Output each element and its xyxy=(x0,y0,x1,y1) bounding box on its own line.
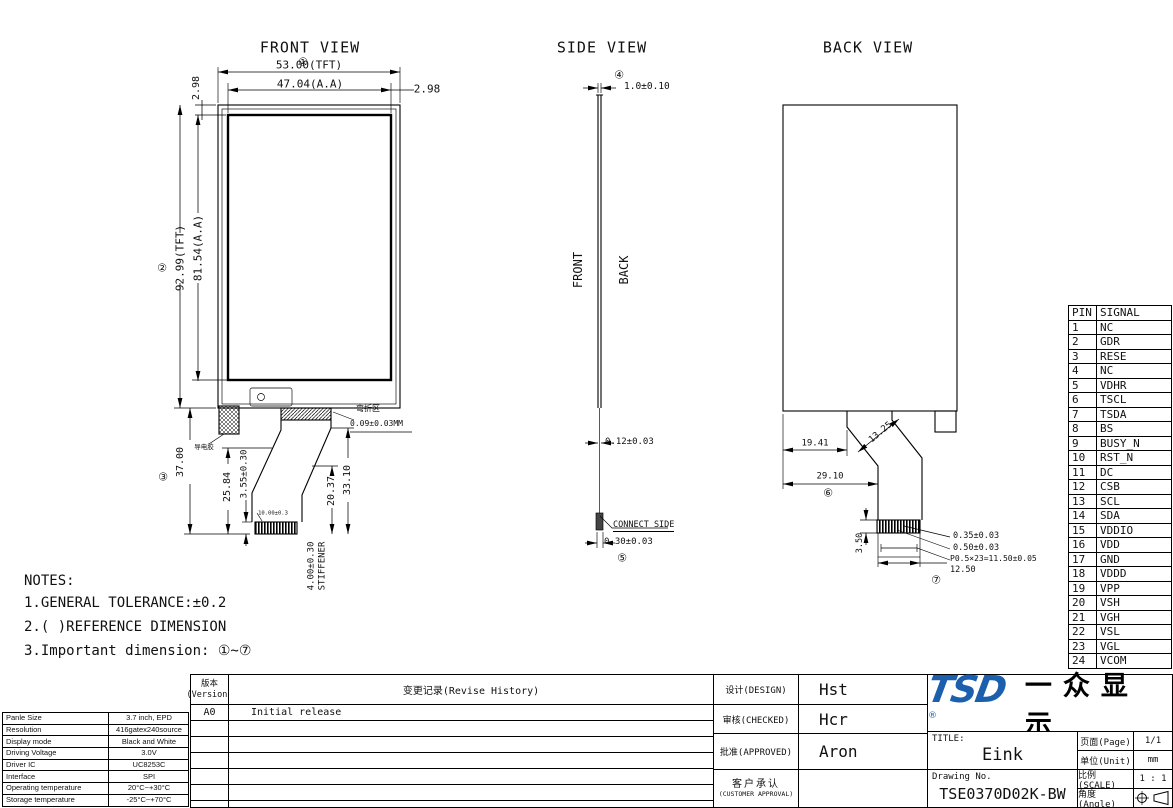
history-header: 变更记录(Revise History) xyxy=(228,674,714,705)
version-header: 版本 (Version) xyxy=(190,674,229,705)
customer-approval-label: 客户承认 (CUSTOMER APPROVAL) xyxy=(713,769,799,808)
table-row: Operating temperature20°C~+30°C xyxy=(3,783,189,795)
checked-value: Hcr xyxy=(798,704,928,734)
table-row: Driver ICUC8253C xyxy=(3,759,189,771)
table-row: Storage temperature-25°C~+70°C xyxy=(3,794,189,806)
title-cell: TITLE: Eink xyxy=(927,731,1078,770)
signal-cell: VSL xyxy=(1097,625,1172,640)
company-logo: TSD® 一众显示 xyxy=(927,674,1173,732)
table-row: 13SCL xyxy=(1069,494,1172,509)
connect-side-label: CONNECT SIDE xyxy=(613,521,674,532)
spec-value: SPI xyxy=(109,771,189,783)
revision-empty-row xyxy=(228,720,714,737)
table-row: 4NC xyxy=(1069,364,1172,379)
pin-cell: 15 xyxy=(1069,523,1097,538)
revision-empty-row xyxy=(190,736,229,753)
customer-label-en: (CUSTOMER APPROVAL) xyxy=(719,791,793,799)
spec-label: Operating temperature xyxy=(3,783,109,795)
dim-1250: 12.50 xyxy=(950,566,976,575)
table-row: Panle Size3.7 inch, EPD xyxy=(3,713,189,725)
signal-cell: NC xyxy=(1097,320,1172,335)
pin-cell: 14 xyxy=(1069,509,1097,524)
tsd-logo-text: TSD xyxy=(924,668,1008,711)
table-row: 9BUSY_N xyxy=(1069,436,1172,451)
foam-label: 导电胶 xyxy=(194,444,214,451)
spec-table: Panle Size3.7 inch, EPD Resolution416gat… xyxy=(2,712,189,807)
dim-pitch: P0.5×23=11.50±0.05 xyxy=(950,555,1037,563)
marker-6: ⑥ xyxy=(823,488,833,499)
signal-cell: CSB xyxy=(1097,480,1172,495)
front-view-dimensions xyxy=(174,67,414,546)
table-row: 19VPP xyxy=(1069,581,1172,596)
table-row: 3RESE xyxy=(1069,349,1172,364)
dim-aa-height: 81.54(A.A) xyxy=(193,215,204,281)
spec-label: Driving Voltage xyxy=(3,748,109,760)
revision-empty-row xyxy=(228,768,714,785)
dim-050: 0.50±0.03 xyxy=(953,544,999,553)
note-3: 3.Important dimension: ①~⑦ xyxy=(24,644,251,658)
notes-title: NOTES: xyxy=(24,574,75,588)
projection-symbol-icon xyxy=(1134,790,1172,806)
table-row: 15VDDIO xyxy=(1069,523,1172,538)
spec-label: Storage temperature xyxy=(3,794,109,806)
signal-cell: VDD xyxy=(1097,538,1172,553)
front-view-title: FRONT VIEW xyxy=(260,41,360,56)
customer-label-cn: 客户承认 xyxy=(732,779,780,791)
table-row: 21VGH xyxy=(1069,610,1172,625)
pin-cell: 16 xyxy=(1069,538,1097,553)
table-row: 17GND xyxy=(1069,552,1172,567)
revision-empty-row xyxy=(228,736,714,753)
drawing-no-value: TSE0370D02K-BW xyxy=(939,785,1065,803)
pin-cell: 11 xyxy=(1069,465,1097,480)
table-row: 10RST_N xyxy=(1069,451,1172,466)
bend-area-dim: 0.09±0.03MM xyxy=(350,420,403,428)
dim-2037: 20.37 xyxy=(327,476,337,506)
table-header-row: PIN SIGNAL xyxy=(1069,306,1172,321)
pin-cell: 19 xyxy=(1069,581,1097,596)
table-row: 11DC xyxy=(1069,465,1172,480)
table-row: 1NC xyxy=(1069,320,1172,335)
spec-value: 20°C~+30°C xyxy=(109,783,189,795)
revision-empty-row xyxy=(190,800,229,808)
pin-cell: 22 xyxy=(1069,625,1097,640)
signal-cell: VSH xyxy=(1097,596,1172,611)
table-row: 23VGL xyxy=(1069,639,1172,654)
table-row: InterfaceSPI xyxy=(3,771,189,783)
spec-value: Black and White xyxy=(109,736,189,748)
marker-2: ② xyxy=(157,263,167,274)
marker-7: ⑦ xyxy=(931,575,941,586)
dim-tft-width: 53.00(TFT) xyxy=(276,60,342,71)
spec-label: Driver IC xyxy=(3,759,109,771)
pin-cell: 5 xyxy=(1069,378,1097,393)
marker-5: ⑤ xyxy=(617,553,627,564)
table-row: 7TSDA xyxy=(1069,407,1172,422)
signal-cell: RST_N xyxy=(1097,451,1172,466)
page-value: 1/1 xyxy=(1133,731,1173,751)
signal-cell: VGL xyxy=(1097,639,1172,654)
spec-value: 3.0V xyxy=(109,748,189,760)
dim-3700: 37.00 xyxy=(176,447,186,477)
approved-value: Aron xyxy=(798,733,928,770)
engineering-drawing-sheet: FRONT VIEW ① 53.00(TFT) 47.04(A.A) 2.98 … xyxy=(0,0,1173,808)
table-row: Resolution416gatex240source xyxy=(3,724,189,736)
title-value: Eink xyxy=(982,745,1023,765)
signal-cell: VDHR xyxy=(1097,378,1172,393)
signal-cell: GDR xyxy=(1097,335,1172,350)
front-view-panel xyxy=(218,105,400,408)
customer-approval-value xyxy=(798,769,928,808)
revision-cell: A0 xyxy=(190,704,229,721)
signal-cell: VPP xyxy=(1097,581,1172,596)
table-row: 18VDDD xyxy=(1069,567,1172,582)
dim-030: 0.30±0.03 xyxy=(604,538,653,547)
table-row: Display modeBlack and White xyxy=(3,736,189,748)
signal-header: SIGNAL xyxy=(1097,306,1172,321)
pin-cell: 21 xyxy=(1069,610,1097,625)
pin-cell: 2 xyxy=(1069,335,1097,350)
table-row: 6TSCL xyxy=(1069,393,1172,408)
drawing-no-label: Drawing No. xyxy=(932,773,992,782)
pin-cell: 17 xyxy=(1069,552,1097,567)
version-label-en: (Version) xyxy=(186,690,232,700)
scale-value: 1 : 1 xyxy=(1133,769,1173,789)
side-view-lines xyxy=(583,83,668,548)
pin-signal-table: PIN SIGNAL 1NC 2GDR 3RESE 4NC 5VDHR 6TSC… xyxy=(1068,305,1172,669)
table-row: 8BS xyxy=(1069,422,1172,437)
tsd-logo: TSD® xyxy=(928,668,1011,739)
revision-empty-row xyxy=(190,768,229,785)
table-row: 20VSH xyxy=(1069,596,1172,611)
approved-label: 批准(APPROVED) xyxy=(713,733,799,770)
pin-cell: 6 xyxy=(1069,393,1097,408)
table-row: 5VDHR xyxy=(1069,378,1172,393)
revision-empty-row xyxy=(190,784,229,801)
design-value: Hst xyxy=(798,674,928,705)
checked-label: 审核(CHECKED) xyxy=(713,704,799,734)
bend-area-label: 弯折区 xyxy=(356,405,380,413)
revision-empty-row xyxy=(190,752,229,769)
pin-cell: 7 xyxy=(1069,407,1097,422)
signal-cell: BS xyxy=(1097,422,1172,437)
spec-label: Interface xyxy=(3,771,109,783)
revision-empty-row xyxy=(228,784,714,801)
dim-aa-width: 47.04(A.A) xyxy=(277,79,343,90)
dim-stiffener-400: 4.00±0.30 xyxy=(308,542,317,591)
signal-cell: DC xyxy=(1097,465,1172,480)
signal-cell: SCL xyxy=(1097,494,1172,509)
unit-value: mm xyxy=(1133,750,1173,770)
table-row: 2GDR xyxy=(1069,335,1172,350)
dim-350: 3.50 xyxy=(856,533,865,553)
pin-cell: 10 xyxy=(1069,451,1097,466)
back-view-panel xyxy=(783,105,957,557)
dim-left-298: 2.98 xyxy=(192,76,202,100)
angle-label: 角度(Angle) xyxy=(1077,788,1134,808)
pin-cell: 12 xyxy=(1069,480,1097,495)
pin-header: PIN xyxy=(1069,306,1097,321)
dim-355: 3.55±0.30 xyxy=(241,450,250,499)
revision-empty-row xyxy=(228,800,714,808)
dim-2910: 29.10 xyxy=(816,473,843,482)
pin-cell: 20 xyxy=(1069,596,1097,611)
pin-cell: 13 xyxy=(1069,494,1097,509)
dim-right-298: 2.98 xyxy=(414,84,441,95)
signal-cell: VDDD xyxy=(1097,567,1172,582)
table-row: 14SDA xyxy=(1069,509,1172,524)
stiffener-label: STIFFENER xyxy=(319,542,328,591)
pin-cell: 3 xyxy=(1069,349,1097,364)
signal-cell: TSCL xyxy=(1097,393,1172,408)
dim-tft-height: 92.99(TFT) xyxy=(175,225,186,291)
signal-cell: TSDA xyxy=(1097,407,1172,422)
registered-mark: ® xyxy=(928,711,937,721)
dim-2584: 25.84 xyxy=(223,472,233,502)
spec-value: 416gatex240source xyxy=(109,724,189,736)
signal-cell: NC xyxy=(1097,364,1172,379)
signal-cell: VGH xyxy=(1097,610,1172,625)
pin-cell: 8 xyxy=(1069,422,1097,437)
pin-cell: 4 xyxy=(1069,364,1097,379)
table-row: 12CSB xyxy=(1069,480,1172,495)
revision-empty-row xyxy=(228,752,714,769)
note-2: 2.( )REFERENCE DIMENSION xyxy=(24,620,226,634)
revision-empty-row xyxy=(190,720,229,737)
side-view-title: SIDE VIEW xyxy=(557,41,647,56)
dim-3310: 33.10 xyxy=(343,465,353,495)
side-front-label: FRONT xyxy=(572,252,584,288)
dim-thickness: 1.0±0.10 xyxy=(624,82,670,92)
pin-cell: 23 xyxy=(1069,639,1097,654)
version-label-cn: 版本 xyxy=(201,679,218,689)
spec-value: UC8253C xyxy=(109,759,189,771)
signal-cell: VDDIO xyxy=(1097,523,1172,538)
spec-label: Resolution xyxy=(3,724,109,736)
gold-finger-note: 10.00±0.3 xyxy=(258,511,288,517)
page-label: 页面(Page) xyxy=(1077,731,1134,751)
design-label: 设计(DESIGN) xyxy=(713,674,799,705)
dim-fpc-thickness: 0.12±0.03 xyxy=(605,438,654,447)
signal-cell: GND xyxy=(1097,552,1172,567)
revision-desc-cell: Initial release xyxy=(228,704,714,721)
spec-value: -25°C~+70°C xyxy=(109,794,189,806)
title-label: TITLE: xyxy=(932,735,965,744)
drawing-no-cell: Drawing No. TSE0370D02K-BW xyxy=(927,769,1078,808)
table-row: Driving Voltage3.0V xyxy=(3,748,189,760)
marker-4: ④ xyxy=(614,70,624,81)
signal-cell: BUSY_N xyxy=(1097,436,1172,451)
back-view-title: BACK VIEW xyxy=(823,41,913,56)
table-row: 16VDD xyxy=(1069,538,1172,553)
dim-035: 0.35±0.03 xyxy=(953,532,999,541)
table-row: 22VSL xyxy=(1069,625,1172,640)
pin-cell: 1 xyxy=(1069,320,1097,335)
spec-label: Panle Size xyxy=(3,713,109,725)
spec-label: Display mode xyxy=(3,736,109,748)
angle-value xyxy=(1133,788,1173,808)
pin-cell: 18 xyxy=(1069,567,1097,582)
dim-1941: 19.41 xyxy=(801,440,828,449)
note-1: 1.GENERAL TOLERANCE:±0.2 xyxy=(24,596,226,610)
side-back-label: BACK xyxy=(618,256,630,285)
pin-cell: 9 xyxy=(1069,436,1097,451)
marker-3: ③ xyxy=(158,472,168,483)
signal-cell: RESE xyxy=(1097,349,1172,364)
signal-cell: SDA xyxy=(1097,509,1172,524)
spec-value: 3.7 inch, EPD xyxy=(109,713,189,725)
